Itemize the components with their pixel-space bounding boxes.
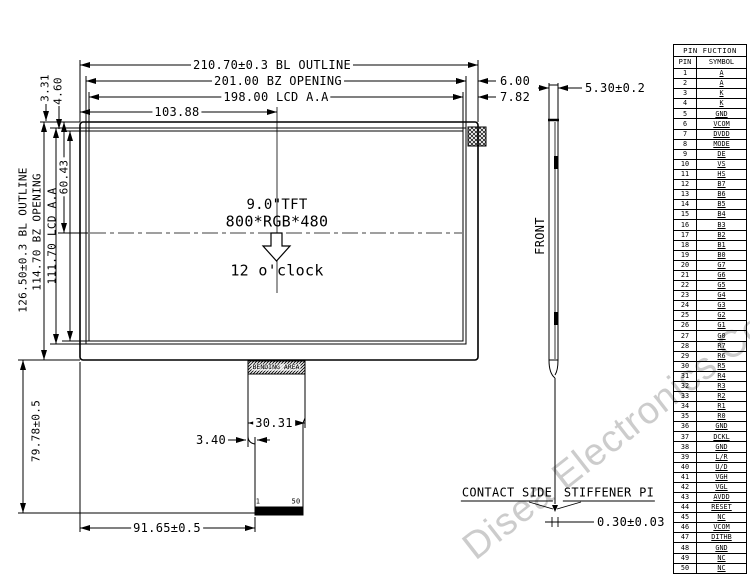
pin-symbol: G7: [697, 260, 747, 270]
pin-symbol: K: [697, 89, 747, 99]
pin-row: 34R1: [674, 402, 747, 412]
pin-row: 40U/D: [674, 462, 747, 472]
dim-fpc-width: 30.31: [253, 417, 295, 429]
contact-pin-first-label: 1: [256, 499, 261, 506]
pin-symbol: B0: [697, 250, 747, 260]
pin-symbol: G6: [697, 270, 747, 280]
pin-number: 39: [674, 452, 697, 462]
pin-number: 32: [674, 381, 697, 391]
pin-symbol: DITHB: [697, 533, 747, 543]
pin-row: 46VCOM: [674, 523, 747, 533]
pin-number: 50: [674, 563, 697, 573]
dim-bz-top-margin: 3.31: [40, 74, 51, 102]
pin-symbol: G1: [697, 321, 747, 331]
pin-symbol: GND: [697, 543, 747, 553]
pin-row: 43AVDD: [674, 492, 747, 502]
pin-number: 45: [674, 513, 697, 523]
pin-number: 13: [674, 190, 697, 200]
pin-symbol: A: [697, 79, 747, 89]
dim-center-from-top: 60.43: [59, 158, 70, 197]
pin-symbol: B6: [697, 190, 747, 200]
pin-row: 18B1: [674, 240, 747, 250]
pin-symbol: B1: [697, 240, 747, 250]
pin-number: 16: [674, 220, 697, 230]
pin-number: 5: [674, 109, 697, 119]
pin-row: 31R4: [674, 371, 747, 381]
pin-symbol: NC: [697, 563, 747, 573]
pin-row: 33R2: [674, 392, 747, 402]
dim-fpc-length: 79.78±0.5: [31, 398, 42, 464]
pin-symbol: RESET: [697, 503, 747, 513]
pin-number: 27: [674, 331, 697, 341]
pin-number: 24: [674, 301, 697, 311]
pin-number: 34: [674, 402, 697, 412]
pin-row: 13B6: [674, 190, 747, 200]
pin-row: 17B2: [674, 230, 747, 240]
viewing-direction-label: 12 o'clock: [230, 264, 323, 279]
pin-symbol: L/R: [697, 452, 747, 462]
pin-row: 35R0: [674, 412, 747, 422]
symbol-col-header: SYMBOL: [697, 57, 747, 69]
stiffener-label: STIFFENER PI: [563, 487, 655, 502]
pin-number: 47: [674, 533, 697, 543]
pin-row: 48GND: [674, 543, 747, 553]
pin-symbol: MODE: [697, 139, 747, 149]
pin-number: 12: [674, 180, 697, 190]
pin-number: 2: [674, 79, 697, 89]
pin-symbol: G5: [697, 280, 747, 290]
pin-symbol: R0: [697, 412, 747, 422]
pin-row: 23G4: [674, 291, 747, 301]
pin-number: 29: [674, 351, 697, 361]
pin-row: 37DCKL: [674, 432, 747, 442]
dim-fpc-left-offset: 3.40: [194, 434, 228, 446]
pin-number: 20: [674, 260, 697, 270]
pin-number: 37: [674, 432, 697, 442]
pin-table: PIN FUCTION PIN SYMBOL 1A2A3K4K5GND6VCOM…: [673, 44, 747, 574]
front-view-label: FRONT: [534, 217, 546, 255]
pin-number: 40: [674, 462, 697, 472]
pin-row: 11HS: [674, 169, 747, 179]
pin-row: 42VGL: [674, 482, 747, 492]
pin-number: 18: [674, 240, 697, 250]
pin-number: 33: [674, 392, 697, 402]
pin-number: 25: [674, 311, 697, 321]
pin-symbol: DVDD: [697, 129, 747, 139]
pin-symbol: R4: [697, 371, 747, 381]
pin-row: 25G2: [674, 311, 747, 321]
panel-resolution-label: 800*RGB*480: [226, 215, 329, 230]
pin-symbol: G2: [697, 311, 747, 321]
pin-row: 22G5: [674, 280, 747, 290]
fpc-contact-bar: [255, 507, 303, 515]
pin-number: 26: [674, 321, 697, 331]
pin-symbol: AVDD: [697, 492, 747, 502]
pin-row: 10VS: [674, 159, 747, 169]
pin-symbol: R3: [697, 381, 747, 391]
pin-symbol: R7: [697, 341, 747, 351]
pin-row: 27G0: [674, 331, 747, 341]
lcd-drawing-page: { "watermark": "Disea Electronics Co., L…: [0, 0, 750, 555]
pin-number: 31: [674, 371, 697, 381]
down-arrow-icon: [260, 232, 293, 263]
pin-symbol: HS: [697, 169, 747, 179]
pin-symbol: GND: [697, 422, 747, 432]
dim-bz-right-margin: 6.00: [500, 75, 530, 87]
pin-number: 41: [674, 472, 697, 482]
pin-row: 6VCOM: [674, 119, 747, 129]
pin-row: 14B5: [674, 200, 747, 210]
pin-symbol: K: [697, 99, 747, 109]
pin-row: 36GND: [674, 422, 747, 432]
pin-table-header-row: PIN SYMBOL: [674, 57, 747, 69]
pin-number: 7: [674, 129, 697, 139]
pin-symbol: A: [697, 69, 747, 79]
pin-col-header: PIN: [674, 57, 697, 69]
pin-symbol: G3: [697, 301, 747, 311]
pin-row: 16B3: [674, 220, 747, 230]
pin-number: 43: [674, 492, 697, 502]
pin-row: 45NC: [674, 513, 747, 523]
pin-number: 30: [674, 361, 697, 371]
pin-number: 22: [674, 280, 697, 290]
pin-table-title-row: PIN FUCTION: [674, 45, 747, 57]
pin-symbol: R2: [697, 392, 747, 402]
contact-side-label: CONTACT SIDE: [461, 487, 553, 502]
pin-table-body: 1A2A3K4K5GND6VCOM7DVDD8MODE9DE10VS11HS12…: [674, 69, 747, 574]
pin-number: 1: [674, 69, 697, 79]
pin-symbol: B5: [697, 200, 747, 210]
pin-number: 28: [674, 341, 697, 351]
pin-symbol: GND: [697, 442, 747, 452]
dim-lcd-aa-width: 198.00 LCD A.A: [221, 91, 330, 103]
pin-number: 44: [674, 503, 697, 513]
dim-module-thickness: 5.30±0.2: [585, 82, 645, 94]
pin-row: 3K: [674, 89, 747, 99]
pin-number: 14: [674, 200, 697, 210]
pin-symbol: VGL: [697, 482, 747, 492]
pin-row: 30R5: [674, 361, 747, 371]
pin-number: 48: [674, 543, 697, 553]
pin-number: 11: [674, 169, 697, 179]
pin-row: 41VGH: [674, 472, 747, 482]
pin-symbol: R6: [697, 351, 747, 361]
pin-number: 8: [674, 139, 697, 149]
pin-number: 9: [674, 149, 697, 159]
pin-symbol: VCOM: [697, 119, 747, 129]
pin-symbol: B3: [697, 220, 747, 230]
pin-row: 39L/R: [674, 452, 747, 462]
pin-symbol: GND: [697, 109, 747, 119]
dim-lcd-top-margin: 4.60: [53, 77, 64, 105]
dim-bl-outline-width: 210.70±0.3 BL OUTLINE: [191, 59, 353, 71]
pin-symbol: R5: [697, 361, 747, 371]
dim-bl-outline-height: 126.50±0.3 BL OUTLINE: [18, 167, 29, 312]
panel-size-label: 9.0"TFT: [246, 198, 307, 212]
pin-row: 15B4: [674, 210, 747, 220]
pin-row: 12B7: [674, 180, 747, 190]
pin-symbol: DE: [697, 149, 747, 159]
pin-row: 20G7: [674, 260, 747, 270]
pin-number: 46: [674, 523, 697, 533]
pin-row: 4K: [674, 99, 747, 109]
dim-center-from-left: 103.88: [152, 106, 201, 118]
pin-number: 38: [674, 442, 697, 452]
dim-bz-opening-width: 201.00 BZ OPENING: [212, 75, 344, 87]
pin-row: 38GND: [674, 442, 747, 452]
pin-symbol: B7: [697, 180, 747, 190]
pin-number: 6: [674, 119, 697, 129]
pin-symbol: G0: [697, 331, 747, 341]
pin-number: 4: [674, 99, 697, 109]
pin-row: 21G6: [674, 270, 747, 280]
pin-row: 26G1: [674, 321, 747, 331]
side-fpc-bend: [549, 360, 558, 378]
dim-bz-opening-height: 114.70 BZ OPENING: [32, 173, 43, 291]
pin-number: 42: [674, 482, 697, 492]
pin-table-title: PIN FUCTION: [674, 45, 747, 57]
pin-number: 15: [674, 210, 697, 220]
pin-symbol: DCKL: [697, 432, 747, 442]
fpc-left-edge: [248, 374, 255, 507]
pin-row: 5GND: [674, 109, 747, 119]
pin-row: 7DVDD: [674, 129, 747, 139]
pin-row: 32R3: [674, 381, 747, 391]
pin-symbol: VCOM: [697, 523, 747, 533]
pin-symbol: G4: [697, 291, 747, 301]
pin-symbol: NC: [697, 513, 747, 523]
pin-symbol: B4: [697, 210, 747, 220]
pin-number: 19: [674, 250, 697, 260]
pin-number: 3: [674, 89, 697, 99]
dim-stiffener-thickness: 0.30±0.03: [597, 516, 665, 528]
dim-lcd-aa-height: 111.70 LCD A.A: [47, 188, 58, 285]
pin-row: 1A: [674, 69, 747, 79]
pin-symbol: B2: [697, 230, 747, 240]
fpc-right-edge: [303, 374, 305, 507]
pin-number: 35: [674, 412, 697, 422]
pin-symbol: R1: [697, 402, 747, 412]
component-hatch: [468, 127, 486, 146]
pin-number: 10: [674, 159, 697, 169]
pin-row: 2A: [674, 79, 747, 89]
pin-row: 50NC: [674, 563, 747, 573]
pin-row: 44RESET: [674, 503, 747, 513]
pin-row: 9DE: [674, 149, 747, 159]
pin-symbol: VGH: [697, 472, 747, 482]
bending-area-label: BENDING AREA: [252, 364, 301, 371]
pin-number: 36: [674, 422, 697, 432]
pin-symbol: VS: [697, 159, 747, 169]
pin-row: 19B0: [674, 250, 747, 260]
pin-number: 21: [674, 270, 697, 280]
pin-number: 17: [674, 230, 697, 240]
pin-row: 8MODE: [674, 139, 747, 149]
dim-lcd-right-margin: 7.82: [500, 91, 530, 103]
pin-symbol: U/D: [697, 462, 747, 472]
pin-row: 24G3: [674, 301, 747, 311]
pin-row: 28R7: [674, 341, 747, 351]
pin-row: 29R6: [674, 351, 747, 361]
pin-number: 23: [674, 291, 697, 301]
dim-contact-from-left: 91.65±0.5: [131, 522, 203, 534]
contact-pin-last-label: 50: [291, 499, 300, 506]
pin-row: 47DITHB: [674, 533, 747, 543]
